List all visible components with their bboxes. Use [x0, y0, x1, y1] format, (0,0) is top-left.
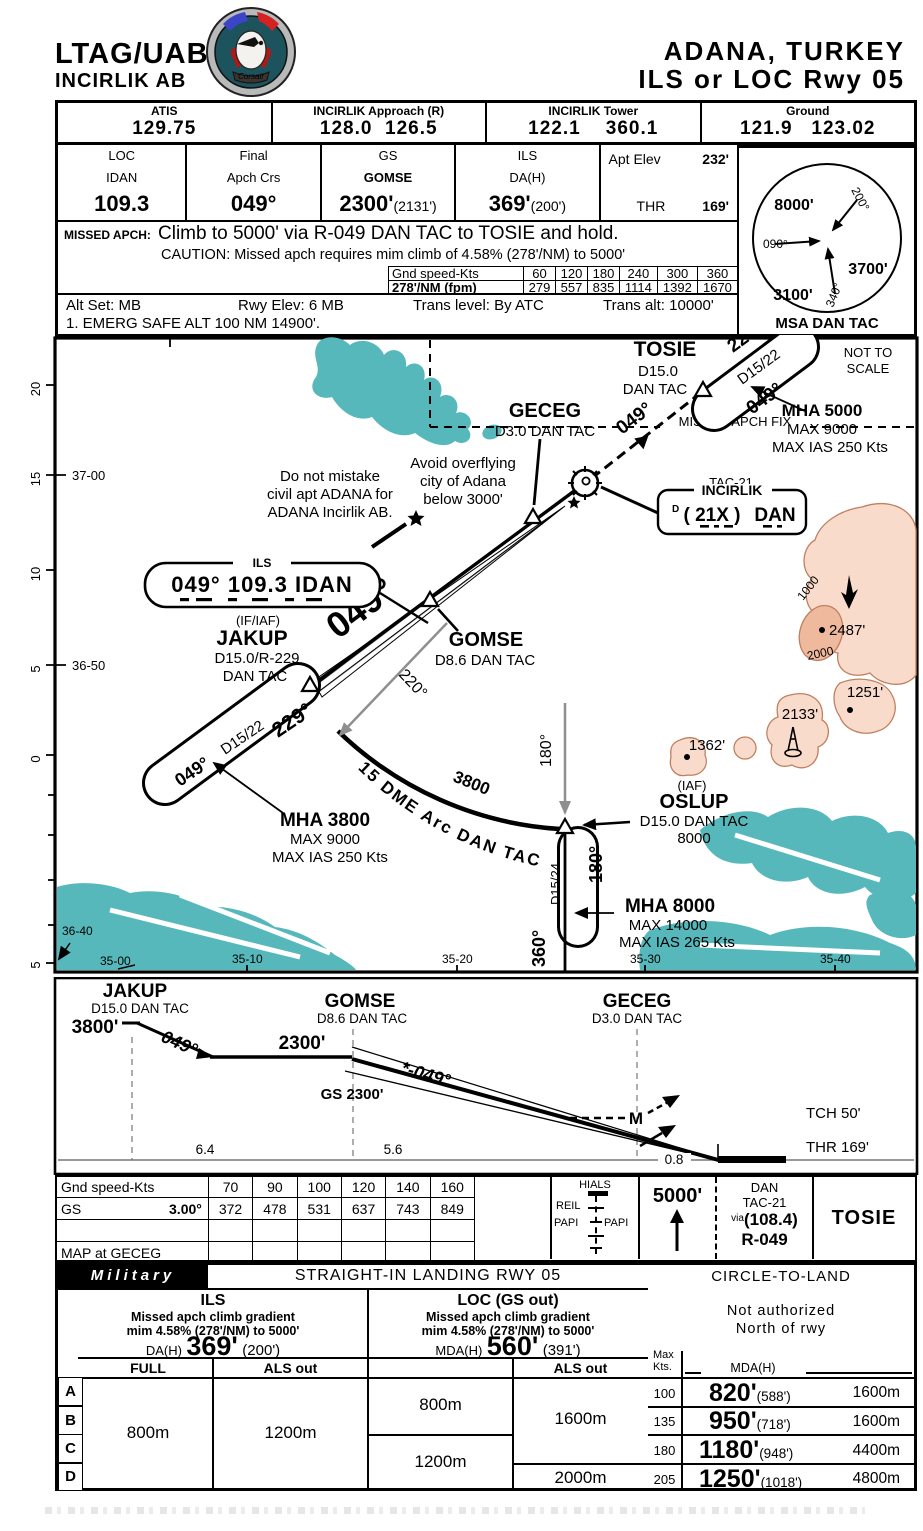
tosie-max-ias: MAX IAS 250 Kts	[772, 439, 888, 456]
da-label: DA(H)	[146, 1343, 182, 1358]
circle-kts: 180	[648, 1443, 681, 1458]
climb-fpm: 835	[587, 281, 619, 295]
circle-vis: 4400m	[853, 1442, 900, 1460]
category-d: D	[58, 1463, 83, 1491]
missed-fix-box: TOSIE	[812, 1177, 914, 1259]
msa-alt-nw: 8000'	[774, 197, 813, 214]
climb-speed: 120	[555, 267, 587, 281]
climb-arrow-icon	[666, 1209, 688, 1251]
profile-geceg-name: GECEG	[603, 991, 672, 1012]
lat-37-00: 37-00	[72, 468, 105, 483]
gomse-name: GOMSE	[449, 629, 523, 651]
tower-frequency: 122.1 360.1	[528, 118, 658, 140]
loc-rvr-cd: 1200m	[368, 1452, 513, 1472]
gs-label: GS	[61, 1201, 81, 1217]
ground-cell: Ground 121.9 123.02	[702, 103, 915, 142]
category-c: C	[58, 1434, 83, 1463]
gs-fpm: 849	[430, 1198, 474, 1220]
gs-fpm: 372	[208, 1198, 252, 1220]
svg-text:0: 0	[28, 755, 43, 762]
svg-text:5: 5	[28, 961, 43, 968]
lat-36-50: 36-50	[72, 658, 105, 673]
gs-altitude-cell: GS GOMSE 2300'(2131')	[322, 145, 456, 220]
lon-35-40: 35-40	[820, 952, 851, 966]
speed-map-strip: Gnd speed-Kts 70 90 100 120 140 160 GS3.…	[55, 1175, 917, 1262]
geceg-name: GECEG	[509, 400, 581, 422]
profile-jakup-dme: D15.0 DAN TAC	[91, 1001, 189, 1016]
circle-mda: 820'(588')	[709, 1379, 791, 1408]
ground-label: Ground	[786, 104, 829, 118]
circle-to-land-title: CIRCLE-TO-LAND	[648, 1268, 914, 1285]
procedure-title: ILS or LOC Rwy 05	[638, 64, 905, 95]
elevation-cell: Apt Elev 232' THR 169'	[601, 145, 737, 220]
tosie-name: TOSIE	[634, 338, 697, 361]
svg-text:Avoid overflying: Avoid overflying	[410, 455, 516, 472]
final-course-cell: Final Apch Crs 049°	[187, 145, 321, 220]
spot-elev-1362: 1362'	[689, 737, 725, 754]
final-label1: Final	[240, 148, 268, 163]
lon-35-00: 35-00	[100, 954, 131, 968]
loc-als-rvr-d: 2000m	[513, 1468, 648, 1488]
climb-speed: 360	[697, 267, 737, 281]
gs-fpm: 531	[297, 1198, 341, 1220]
profile-view: JAKUP D15.0 DAN TAC 3800' 049° 2300' GOM…	[0, 977, 923, 1175]
chart-city-title: ADANA, TURKEY	[664, 36, 905, 67]
jakup-iaf: (IF/IAF)	[236, 613, 280, 628]
ils-full-header: FULL	[83, 1360, 213, 1376]
airport-name: INCIRLIK AB	[55, 70, 186, 93]
gs-speed: 140	[386, 1176, 430, 1198]
gs-speed: 90	[253, 1176, 297, 1198]
approach-lighting-box: HIALS REIL PAPI PAPI	[550, 1177, 640, 1259]
profile-gomse-name: GOMSE	[325, 991, 396, 1012]
papi-left-label: PAPI	[554, 1217, 578, 1229]
approach-label: INCIRLIK Approach (R)	[313, 104, 444, 118]
circle-row-b: 135 950'(718') 1600m	[648, 1406, 914, 1437]
missed-apch-text: Climb to 5000' via R-049 DAN TAC to TOSI…	[158, 223, 619, 245]
gs-speed: 70	[208, 1176, 252, 1198]
trans-alt: Trans alt: 10000'	[603, 297, 714, 314]
ils-full-rvr: 800m	[83, 1423, 213, 1443]
military-tag: Military	[58, 1265, 208, 1288]
navaid-ident: DAN	[754, 505, 795, 526]
thr-label: THR 169'	[806, 1139, 869, 1156]
reil-label: REIL	[556, 1200, 580, 1212]
svg-text:20: 20	[28, 382, 43, 396]
groundspeed-table: Gnd speed-Kts 70 90 100 120 140 160 GS3.…	[55, 1175, 475, 1264]
tosie-max: MAX 9000	[787, 421, 857, 438]
climb-fpm-label: 278'/NM (fpm)	[389, 281, 524, 295]
atis-cell: ATIS 129.75	[58, 103, 273, 142]
profile-gomse-dme: D8.6 DAN TAC	[317, 1011, 408, 1026]
missed-routing-box: DAN TAC-21 via(108.4) R-049	[715, 1177, 812, 1259]
not-to-scale-2: SCALE	[847, 361, 890, 376]
missed-navaid-name: DAN	[717, 1180, 812, 1195]
circle-vis: 1600m	[853, 1384, 900, 1402]
missed-apch-caution: CAUTION: Missed apch requires mim climb …	[161, 247, 625, 263]
final-course: 049°	[231, 191, 277, 217]
climb-fpm: 279	[524, 281, 556, 295]
logo-banner-text: Corsair	[238, 72, 264, 81]
circle-mda: 950'(718')	[709, 1407, 791, 1436]
frequency-strip: ATIS 129.75 INCIRLIK Approach (R) 128.0 …	[55, 100, 917, 145]
circle-row-a: 100 820'(588') 1600m	[648, 1377, 914, 1408]
tower-label: INCIRLIK Tower	[548, 104, 638, 118]
svg-text:below 3000': below 3000'	[423, 491, 503, 508]
altimeter-settings-row: Alt Set: MB Rwy Elev: 6 MB Trans level: …	[55, 295, 737, 337]
ils-box-tag: ILS	[253, 556, 272, 570]
gs-fpm: 637	[341, 1198, 385, 1220]
thr-elev-label: THR	[637, 198, 666, 214]
via-label: via	[731, 1213, 744, 1224]
alt-set: Alt Set: MB	[66, 297, 141, 314]
plan-view-map: 1000 2000 20 15 10 5 0 5 37-00 36-50 36-…	[0, 335, 923, 975]
missed-navaid-freq: (108.4)	[744, 1210, 798, 1229]
ils-da-cell: ILS DA(H) 369'(200')	[456, 145, 600, 220]
jakup-navaid: DAN TAC	[223, 668, 288, 685]
navaid-dme-flag: D	[672, 504, 679, 515]
atis-label: ATIS	[151, 104, 177, 118]
loc-ident: IDAN	[106, 170, 137, 185]
rwy-elev: Rwy Elev: 6 MB	[238, 297, 344, 314]
map-symbol: M	[629, 1109, 643, 1128]
segment-distance-1: 6.4	[196, 1142, 215, 1157]
svg-text:5: 5	[28, 665, 43, 672]
loc-rvr-ab: 800m	[368, 1395, 513, 1415]
svg-text:civil apt ADANA for: civil apt ADANA for	[267, 486, 393, 503]
missed-approach-box: MISSED APCH: Climb to 5000' via R-049 DA…	[55, 222, 737, 295]
climb-speed: 60	[524, 267, 556, 281]
bottom-print-smudge	[45, 1507, 865, 1514]
ground-frequency: 121.9 123.02	[740, 118, 876, 140]
oslup-altitude: 8000	[677, 830, 710, 847]
category-a: A	[58, 1377, 83, 1406]
circle-row-d: 205 1250'(1018') 4800m	[648, 1463, 914, 1493]
missed-initial-altitude-box: 5000'	[640, 1177, 715, 1259]
climb-fpm: 1114	[619, 281, 657, 295]
circle-mda-header: MDA(H)	[698, 1361, 808, 1375]
svg-text:Do not mistake: Do not mistake	[280, 468, 380, 485]
ils-label: ILS	[518, 148, 538, 163]
final-label2: Apch Crs	[227, 170, 280, 185]
msa-radial-200: 200°	[848, 185, 872, 214]
segment-distance-2: 5.6	[384, 1142, 403, 1157]
da-label: DA(H)	[509, 170, 545, 185]
gs-fix: GOMSE	[364, 170, 412, 185]
hials-label: HIALS	[552, 1179, 638, 1191]
profile-geceg-dme: D3.0 DAN TAC	[592, 1011, 683, 1026]
da-value: 369'	[489, 191, 531, 216]
oslup-hold-inbound: 180°	[586, 846, 606, 883]
svg-text:10: 10	[28, 567, 43, 581]
lighting-ladder-icon	[595, 1196, 597, 1254]
oslup-mha: MHA 8000	[625, 896, 715, 917]
spot-elev-2487: 2487'	[829, 622, 865, 639]
gs-fpm: 743	[386, 1198, 430, 1220]
jakup-mha: MHA 3800	[280, 810, 370, 831]
tosie-navaid: DAN TAC	[623, 381, 688, 398]
msa-alt-sw: 3100'	[773, 287, 812, 304]
climb-fpm: 557	[555, 281, 587, 295]
profile-gs-altitude: GS 2300'	[321, 1086, 384, 1103]
svg-text:15: 15	[28, 472, 43, 486]
papi-right-label: PAPI	[604, 1217, 628, 1229]
loc-column-title: LOC (GS out)	[368, 1292, 648, 1310]
lon-35-10: 35-10	[232, 952, 263, 966]
category-b: B	[58, 1406, 83, 1435]
jakup-name: JAKUP	[216, 627, 287, 650]
gs-table-speed-label: Gnd speed-Kts	[56, 1176, 209, 1198]
msa-label: MSA DAN TAC	[775, 315, 878, 332]
approach-cell: INCIRLIK Approach (R) 128.0 126.5	[273, 103, 488, 142]
climb-fpm: 1670	[697, 281, 737, 295]
loc-cell: LOC IDAN 109.3	[58, 145, 187, 220]
mda-label: MDA(H)	[435, 1343, 482, 1358]
climb-fpm: 1392	[657, 281, 697, 295]
lon-35-30: 35-30	[630, 952, 661, 966]
oslup-arrival-course-180: 180°	[538, 734, 555, 767]
approach-frequency: 128.0 126.5	[320, 118, 438, 140]
tch-label: TCH 50'	[806, 1105, 861, 1122]
runway-symbol	[718, 1156, 786, 1163]
gs-altitude: 2300'(2131')	[339, 191, 436, 217]
ils-als-out-header: ALS out	[213, 1360, 368, 1376]
circle-kts: 135	[648, 1414, 681, 1429]
svg-text:city of Adana: city of Adana	[420, 473, 507, 490]
climb-speed: 300	[657, 267, 697, 281]
oslup-dme: D15.0 DAN TAC	[640, 813, 749, 830]
missed-fix-name: TOSIE	[832, 1207, 897, 1230]
ils-column-title: ILS	[58, 1292, 368, 1310]
ils-als-rvr: 1200m	[213, 1423, 368, 1443]
jakup-dme: D15.0/R-229	[214, 650, 299, 667]
jakup-max-ias: MAX IAS 250 Kts	[272, 849, 388, 866]
airport-symbol	[568, 466, 602, 500]
gs-angle: 3.00°	[169, 1201, 208, 1217]
profile-level-altitude: 2300'	[279, 1033, 326, 1054]
profile-jakup-altitude: 3800'	[72, 1017, 119, 1038]
map-at-label: MAP at GECEG	[56, 1242, 209, 1264]
loc-gradient-1: Missed apch climb gradient	[368, 1310, 648, 1324]
climb-speed: 240	[619, 267, 657, 281]
da-paren: (200')	[531, 198, 566, 214]
procedure-data-bar: LOC IDAN 109.3 Final Apch Crs 049° GS GO…	[55, 145, 737, 222]
tower-cell: INCIRLIK Tower 122.1 360.1	[487, 103, 702, 142]
corsair-logo: Corsair	[205, 6, 297, 98]
profile-jakup-name: JAKUP	[103, 981, 168, 1002]
circle-mda: 1250'(1018')	[699, 1465, 802, 1494]
da-value-group: 369'(200')	[489, 191, 566, 217]
gs-label: GS	[379, 148, 398, 163]
circle-vis: 1600m	[853, 1413, 900, 1431]
msa-alt-e: 3700'	[848, 261, 887, 278]
loc-als-out-header: ALS out	[513, 1360, 648, 1376]
gs-speed: 120	[341, 1176, 385, 1198]
geceg-dme: D3.0 DAN TAC	[495, 423, 595, 440]
tosie-mha: MHA 5000	[782, 401, 863, 420]
loc-als-rvr-ac: 1600m	[513, 1409, 648, 1429]
gomse-dme: D8.6 DAN TAC	[435, 652, 535, 669]
gs-angle-cell: GS3.00°	[56, 1198, 209, 1220]
climb-speed: 180	[587, 267, 619, 281]
missed-radial: R-049	[717, 1230, 812, 1250]
gs-speed: 100	[297, 1176, 341, 1198]
loc-frequency: 109.3	[94, 191, 149, 217]
spot-elev-1251: 1251'	[847, 684, 883, 701]
gs-speed: 160	[430, 1176, 474, 1198]
oslup-hold-leg: D15/24	[548, 863, 563, 905]
circle-note-1: Not authorized	[648, 1303, 914, 1319]
oslup-max: MAX 14000	[629, 917, 707, 934]
oslup-hold-outbound: 360°	[529, 930, 549, 967]
atis-frequency: 129.75	[132, 118, 196, 140]
msa-box: 8000' 3700' 3100' 090° 200° 340° MSA DAN…	[737, 145, 917, 337]
climb-speed-label: Gnd speed-Kts	[389, 267, 524, 281]
thr-elev-value: 169'	[702, 198, 729, 214]
logo-bird	[236, 31, 266, 69]
oslup-name: OSLUP	[660, 791, 729, 813]
circle-kts: 100	[648, 1386, 681, 1401]
emerg-safe-alt: 1. EMERG SAFE ALT 100 NM 14900'.	[66, 315, 320, 332]
gs-fpm: 478	[253, 1198, 297, 1220]
circle-kts: 205	[648, 1472, 681, 1487]
lat-36-40: 36-40	[62, 924, 93, 938]
hials-bar-icon	[588, 1191, 608, 1196]
spot-elev-2133: 2133'	[782, 706, 818, 723]
airport-icao-code: LTAG/UAB	[55, 38, 209, 71]
ils-box-text: 049° 109.3 IDAN	[171, 572, 353, 597]
missed-navaid-channel: TAC-21	[717, 1195, 812, 1210]
apt-elev-label: Apt Elev	[609, 151, 661, 167]
straight-in-title: STRAIGHT-IN LANDING RWY 05	[208, 1267, 648, 1285]
missed-apch-label: MISSED APCH:	[64, 228, 151, 242]
lon-35-20: 35-20	[442, 952, 473, 966]
circle-mda: 1180'(948')	[699, 1436, 793, 1465]
circle-row-c: 180 1180'(948') 4400m	[648, 1434, 914, 1465]
msa-radial-090: 090°	[763, 237, 788, 251]
max-kts-label: MaxKts.	[653, 1349, 674, 1373]
apt-elev-value: 232'	[702, 151, 729, 167]
climb-gradient-table: Gnd speed-Kts 60 120 180 240 300 360 278…	[388, 266, 738, 295]
landing-minima-table: Military STRAIGHT-IN LANDING RWY 05 ILS …	[55, 1262, 917, 1491]
ils-gradient-1: Missed apch climb gradient	[58, 1310, 368, 1324]
loc-label: LOC	[108, 148, 135, 163]
not-to-scale-1: NOT TO	[844, 345, 892, 360]
gs-altitude-value: 2300'	[339, 191, 393, 216]
msa-radial-340: 340°	[823, 281, 845, 309]
approach-chart-page: LTAG/UAB INCIRLIK AB ADANA, TURKEY ILS o…	[0, 0, 923, 1531]
jakup-max: MAX 9000	[290, 831, 360, 848]
circle-vis: 4800m	[853, 1470, 900, 1488]
trans-level: Trans level: By ATC	[413, 297, 544, 314]
circle-note-2: North of rwy	[648, 1321, 914, 1337]
gs-altitude-paren: (2131')	[394, 198, 437, 214]
segment-distance-3: 0.8	[665, 1152, 684, 1167]
svg-text:ADANA Incirlik AB.: ADANA Incirlik AB.	[267, 504, 392, 521]
navaid-name: INCIRLIK	[702, 482, 763, 498]
navaid-channel: ( 21X )	[683, 505, 740, 526]
oslup-max-ias: MAX IAS 265 Kts	[619, 934, 735, 951]
tosie-dme: D15.0	[638, 363, 678, 380]
missed-altitude: 5000'	[640, 1185, 715, 1208]
